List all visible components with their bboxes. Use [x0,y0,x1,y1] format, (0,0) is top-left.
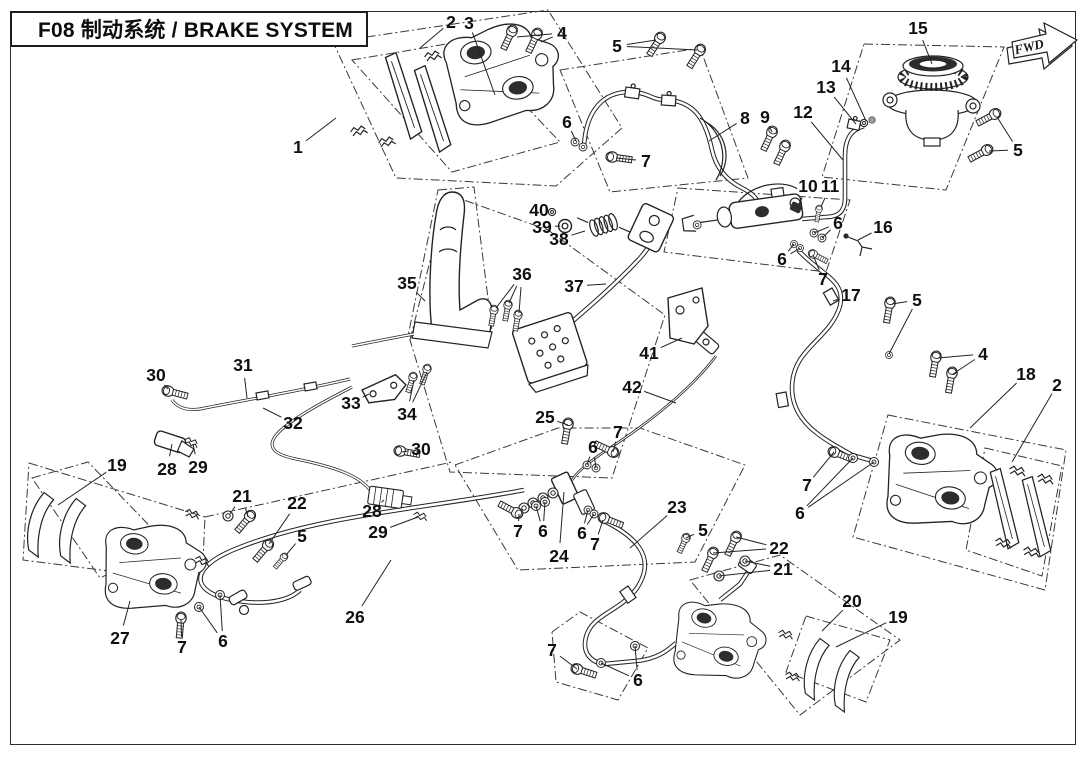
brake-light-switch [843,233,872,256]
caliper-bolt [927,350,942,377]
banjo-bolt [497,499,525,520]
callout-25: 25 [535,407,555,427]
page-title: F08 制动系统 / BRAKE SYSTEM [38,14,353,44]
leader-line [263,408,281,417]
callout-22: 22 [287,493,307,513]
pad-retainer-clip [785,672,801,682]
callout-4: 4 [557,23,567,43]
front-pad-plate [385,51,423,141]
rigid-brake-line [572,356,716,480]
callout-11: 11 [821,176,840,196]
hose-clamp [661,91,676,106]
callout-27: 27 [110,628,129,648]
mount-bolt [881,296,896,323]
callout-1: 1 [293,137,303,157]
leader-line [970,383,1017,428]
cable-clip [413,512,428,521]
callout-6: 6 [218,631,228,651]
rear-left-caliper-assembly [21,491,248,616]
pad-retainer-clip [1009,466,1027,477]
callout-7: 7 [613,422,623,442]
mount-bolt [685,42,708,70]
callout-5: 5 [1013,140,1023,160]
callout-21: 21 [773,559,793,579]
right-caliper-assembly [879,426,1054,558]
callout-5: 5 [297,526,307,546]
reservoir-bolt [967,143,995,164]
banjo-bolt [570,662,598,680]
leader-line [834,97,856,124]
callout-23: 23 [667,497,687,517]
leader-line [661,338,682,348]
bleeder-screw [675,532,691,554]
pad-retainer-clip [378,136,396,147]
callout-10: 10 [798,176,818,196]
callout-29: 29 [188,457,208,477]
leader-line [587,284,606,285]
callout-6: 6 [588,437,598,457]
leader-line [560,656,577,669]
leader-line [306,118,336,141]
leader-line [889,309,912,354]
leader-line [807,458,853,506]
caliper-bolt [943,366,958,393]
leader-line [713,549,766,553]
cable-bolt [161,384,189,401]
right-pad-plate [1022,475,1051,557]
callout-12: 12 [793,102,813,122]
callout-38: 38 [549,229,569,249]
leader-line [269,514,290,544]
hose-clamp [847,115,861,130]
bracket-bolt [404,371,418,393]
callout-7: 7 [802,475,812,495]
pad-retainer-clip [424,50,442,61]
callout-8: 8 [740,108,750,128]
right-pad-plate [990,467,1019,549]
junction-bolt [559,417,574,444]
fwd-direction-arrow: FWD [1007,23,1077,69]
callout-31: 31 [233,355,253,375]
callout-4: 4 [978,344,988,364]
callout-19: 19 [888,607,908,627]
callout-24: 24 [549,546,569,566]
pad-retainer-clip [350,125,368,136]
callout-6: 6 [777,249,787,269]
callout-41: 41 [639,343,659,363]
leader-line [199,607,217,633]
parts-catalog-page: { "page": { "title": "F08 制动系统 / BRAKE S… [0,0,1090,760]
hoses-and-cables [172,83,876,664]
leader-line [58,472,106,505]
title-box: F08 制动系统 / BRAKE SYSTEM [10,11,368,47]
callout-13: 13 [816,77,836,97]
clamp-screw [813,205,823,223]
callout-18: 18 [1016,364,1036,384]
callout-3: 3 [464,13,474,33]
callout-35: 35 [397,273,417,293]
callout-26: 26 [345,607,365,627]
leader-line [736,537,766,545]
caliper-bolt [723,529,743,557]
leader-line [989,150,1008,151]
rear-bottom-pad [798,637,830,700]
callout-20: 20 [842,591,862,611]
leader-line [220,595,222,631]
callout-2: 2 [1052,375,1062,395]
callout-22: 22 [769,538,789,558]
leader-line [630,516,667,549]
leader-line [821,198,825,207]
nut [886,352,893,359]
callout-32: 32 [283,413,303,433]
front-brake-hose [584,92,760,206]
leader-line [808,462,874,507]
rear-bottom-pad [828,649,860,712]
leader-line [644,391,676,403]
callout-6: 6 [633,670,643,690]
callout-7: 7 [590,534,600,554]
leader-line [541,37,553,42]
mount-bolt [772,138,792,166]
leader-line [811,122,843,160]
callout-7: 7 [513,521,523,541]
callout-34: 34 [397,404,417,424]
callout-5: 5 [698,520,708,540]
callout-37: 37 [564,276,583,296]
leader-line [390,517,418,527]
callout-36: 36 [512,264,532,284]
hose-clamp [823,288,839,305]
callout-7: 7 [177,637,187,657]
leader-line [245,378,247,398]
callout-30: 30 [146,365,166,385]
callout-14: 14 [831,56,851,76]
callout-6: 6 [562,112,572,132]
leader-line [858,233,872,240]
callout-7: 7 [547,640,557,660]
leader-line [286,544,296,555]
leader-line [509,286,517,303]
pedal-return-spring [577,204,630,247]
leader-line [1012,394,1052,462]
front-pad-plate [414,64,452,154]
callout-7: 7 [641,151,651,171]
leader-line [362,560,391,606]
callout-7: 7 [818,269,828,289]
callout-16: 16 [873,217,893,237]
callout-5: 5 [912,290,922,310]
leader-line [709,123,737,141]
callout-9: 9 [760,107,770,127]
brake-system-diagram: FWD 123456789121314155101161667175418240… [0,0,1090,760]
callout-6: 6 [577,523,587,543]
callout-42: 42 [622,377,642,397]
pad-retainer-clip [1037,474,1055,485]
leader-line [953,360,975,375]
brake-fluid-reservoir [883,56,980,146]
leader-line [627,47,697,51]
pad-retainer-clip [778,630,794,640]
sealing-washer [579,143,587,151]
callout-33: 33 [341,393,361,413]
lever-bolt [501,300,513,322]
callout-2: 2 [446,12,456,32]
callout-5: 5 [612,36,622,56]
callout-19: 19 [107,455,127,475]
leader-line [813,452,834,477]
leader-line [822,610,843,631]
cable-bracket [360,373,408,406]
leader-line [519,287,521,313]
hose-clamp [776,392,788,408]
callout-6: 6 [833,213,843,233]
callout-15: 15 [908,18,928,38]
caliper-bolt [700,545,720,573]
parking-brake-lever [352,192,492,348]
callout-28: 28 [157,459,177,479]
callout-30: 30 [411,439,431,459]
banjo-eye [240,606,249,615]
cable-end-bracket [153,430,196,458]
leader-line [571,231,585,235]
pedal-pad [512,312,591,394]
leader-line [938,355,973,358]
rear-left-pad [53,497,87,563]
leader-line [627,40,656,45]
brake-line-junction [519,472,595,515]
mount-bolt [759,124,779,152]
pad-retainer-clip [184,509,200,520]
leader-line [846,78,866,121]
callout-21: 21 [232,486,252,506]
hose-clamp [625,83,641,99]
callout-28: 28 [362,501,382,521]
caliper-bolt [233,508,258,535]
callout-6: 6 [795,503,805,523]
callout-29: 29 [368,522,388,542]
hose-elbow-fitting [292,575,312,591]
banjo-bolt [174,612,187,639]
leader-line [997,117,1013,142]
reservoir-hose [802,126,864,219]
callout-17: 17 [841,285,860,305]
callout-6: 6 [538,521,548,541]
leader-line [181,620,182,637]
